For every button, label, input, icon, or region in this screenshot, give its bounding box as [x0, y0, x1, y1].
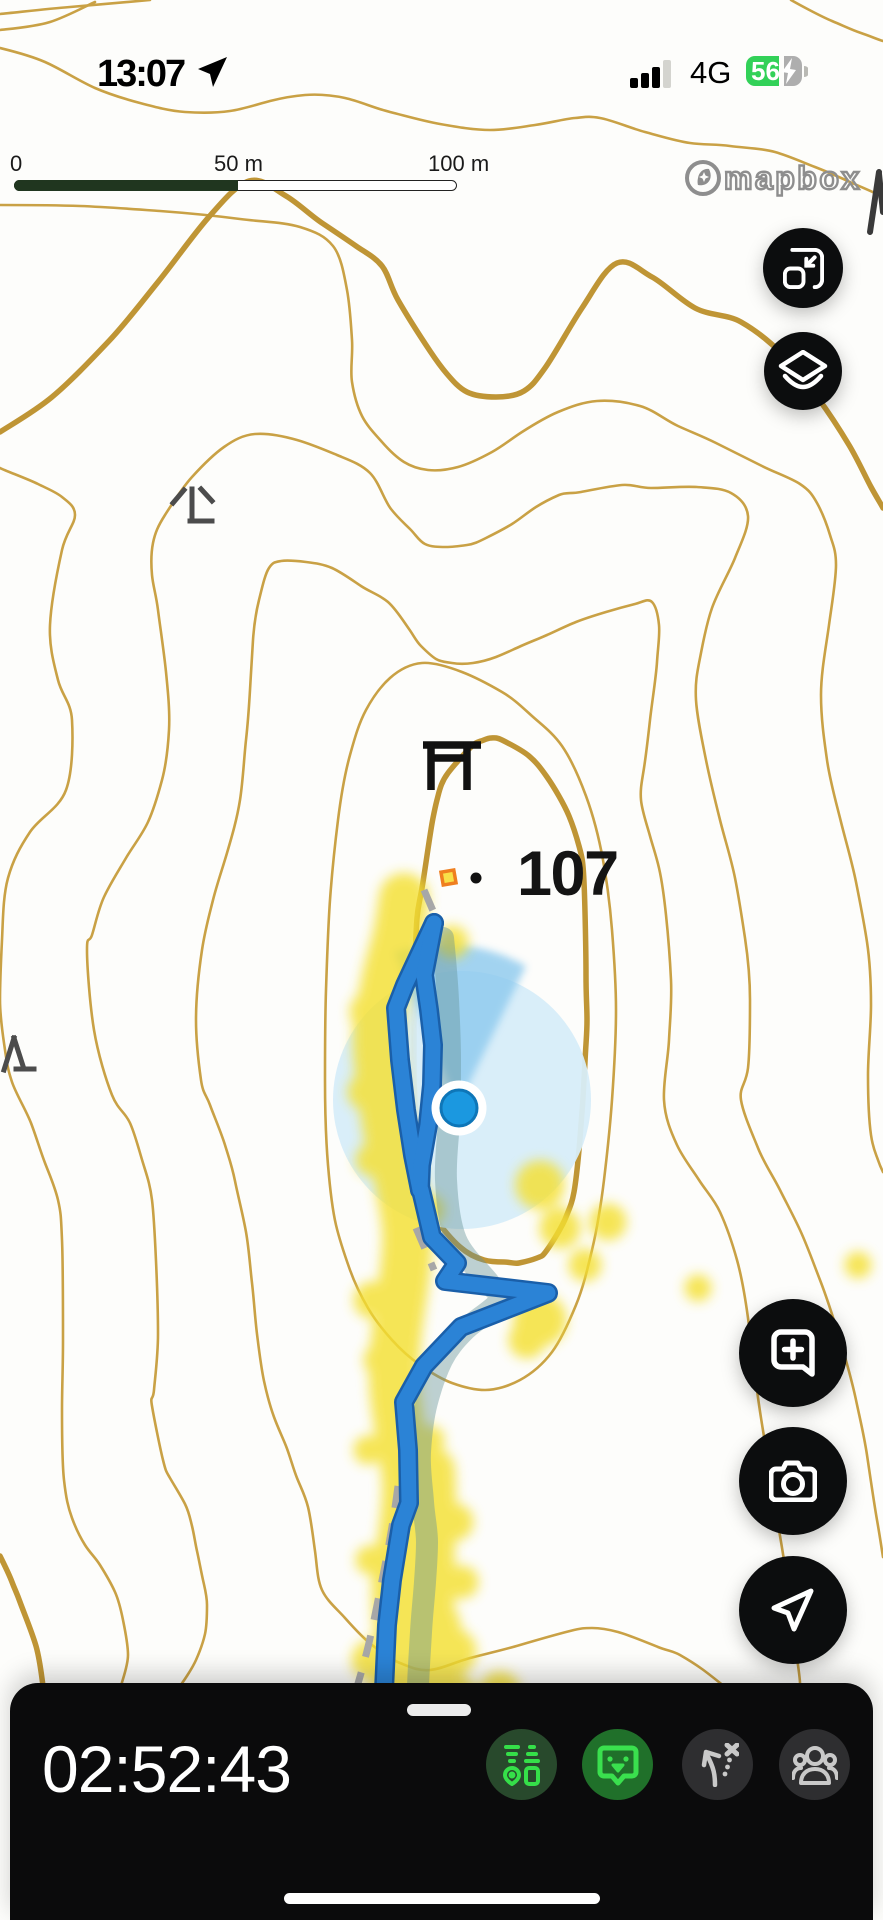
- svg-text:56: 56: [751, 56, 780, 86]
- svg-text:mapbox: mapbox: [724, 160, 862, 196]
- svg-text:107: 107: [517, 839, 618, 909]
